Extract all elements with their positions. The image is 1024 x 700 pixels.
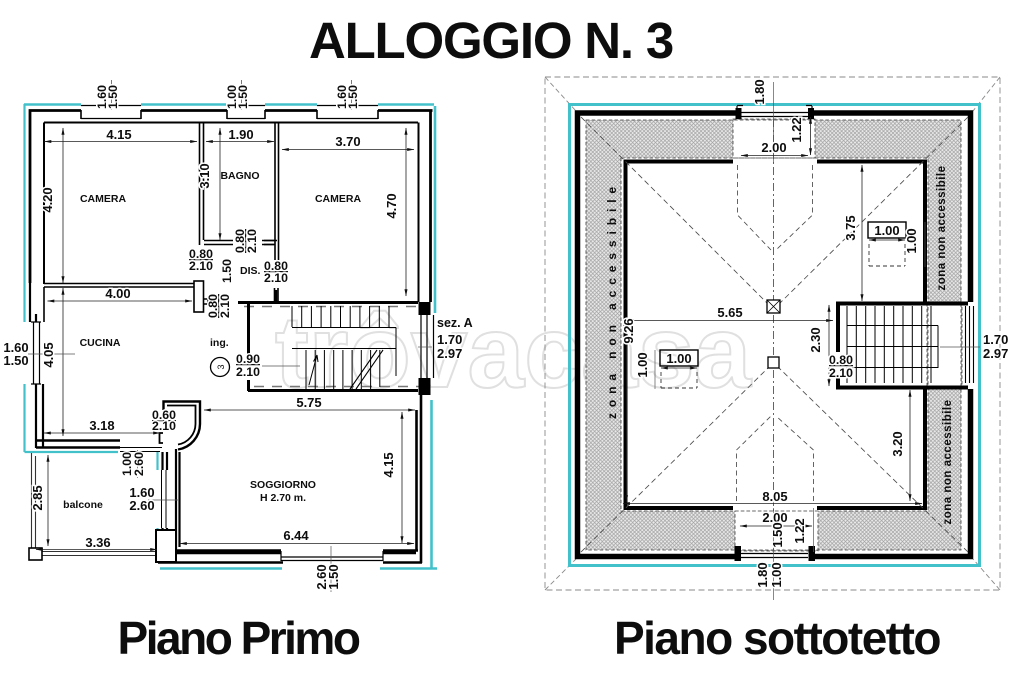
svg-text:1.50: 1.50 [220, 259, 234, 283]
svg-text:1.70: 1.70 [983, 332, 1008, 347]
svg-text:2.97: 2.97 [437, 346, 462, 361]
svg-text:1.00: 1.00 [666, 351, 691, 366]
svg-text:6.44: 6.44 [283, 528, 309, 543]
svg-text:1.50: 1.50 [770, 522, 785, 547]
svg-text:balcone: balcone [63, 499, 103, 511]
svg-text:2.10: 2.10 [189, 259, 213, 273]
svg-text:8.05: 8.05 [762, 489, 787, 504]
svg-text:4.00: 4.00 [105, 286, 130, 301]
svg-text:2.97: 2.97 [983, 346, 1008, 361]
svg-text:0.90: 0.90 [236, 352, 260, 366]
svg-text:CAMERA: CAMERA [315, 193, 361, 205]
svg-text:1.90: 1.90 [228, 127, 253, 142]
svg-text:5.65: 5.65 [717, 305, 742, 320]
svg-text:CAMERA: CAMERA [80, 193, 126, 205]
svg-text:DIS.: DIS. [240, 265, 261, 277]
svg-text:1.50: 1.50 [106, 85, 120, 109]
svg-text:zona non accessibile: zona non accessibile [942, 399, 954, 524]
svg-text:1.00: 1.00 [874, 223, 899, 238]
svg-text:3.75: 3.75 [843, 215, 858, 240]
svg-text:zona non accessibile: zona non accessibile [936, 165, 948, 290]
svg-text:ALLOGGIO N. 3: ALLOGGIO N. 3 [309, 12, 673, 69]
svg-text:2.10: 2.10 [829, 366, 853, 380]
svg-text:ing.: ing. [210, 337, 229, 349]
svg-text:CUCINA: CUCINA [80, 337, 121, 349]
svg-text:5.75: 5.75 [296, 395, 321, 410]
svg-text:1.00: 1.00 [635, 352, 650, 377]
svg-text:3.18: 3.18 [89, 418, 114, 433]
svg-text:Piano Primo: Piano Primo [118, 612, 360, 664]
svg-text:4.70: 4.70 [384, 193, 399, 218]
svg-text:3.36: 3.36 [85, 535, 110, 550]
svg-text:2.10: 2.10 [218, 294, 232, 318]
svg-text:1.80: 1.80 [755, 562, 770, 587]
svg-text:3.20: 3.20 [890, 431, 905, 456]
svg-text:2.10: 2.10 [264, 271, 288, 285]
svg-text:2.10: 2.10 [236, 365, 260, 379]
svg-text:1.50: 1.50 [236, 85, 250, 109]
svg-text:zona non accessibile: zona non accessibile [605, 181, 619, 419]
svg-text:1.80: 1.80 [752, 79, 767, 104]
svg-text:BAGNO: BAGNO [220, 170, 259, 182]
svg-text:2.85: 2.85 [30, 485, 45, 510]
svg-text:4.20: 4.20 [40, 187, 55, 212]
svg-text:3.10: 3.10 [197, 163, 212, 188]
svg-text:1.50: 1.50 [346, 85, 360, 109]
svg-text:1.50: 1.50 [3, 353, 28, 368]
svg-text:2.60: 2.60 [129, 498, 154, 513]
svg-text:H 2.70 m.: H 2.70 m. [260, 492, 306, 504]
svg-text:2.60: 2.60 [132, 452, 146, 476]
svg-text:1.00: 1.00 [904, 228, 919, 253]
svg-text:4.15: 4.15 [106, 127, 131, 142]
svg-text:1.50: 1.50 [326, 564, 341, 589]
svg-text:1.22: 1.22 [792, 518, 807, 543]
svg-text:2.00: 2.00 [761, 140, 786, 155]
svg-text:2.30: 2.30 [808, 327, 823, 352]
svg-text:SOGGIORNO: SOGGIORNO [250, 479, 316, 491]
svg-text:1.00: 1.00 [769, 562, 784, 587]
svg-text:Piano sottotetto: Piano sottotetto [614, 612, 940, 664]
svg-text:1.70: 1.70 [437, 332, 462, 347]
svg-text:4.15: 4.15 [381, 452, 396, 477]
svg-text:0.80: 0.80 [829, 353, 853, 367]
svg-text:9.26: 9.26 [621, 318, 636, 343]
svg-text:sez. A: sez. A [437, 316, 473, 330]
svg-text:1.22: 1.22 [789, 117, 804, 142]
svg-text:2.10: 2.10 [152, 419, 176, 433]
svg-text:3: 3 [216, 364, 226, 369]
svg-text:3.70: 3.70 [335, 134, 360, 149]
svg-text:2.10: 2.10 [245, 229, 259, 253]
svg-text:4.05: 4.05 [41, 342, 56, 367]
